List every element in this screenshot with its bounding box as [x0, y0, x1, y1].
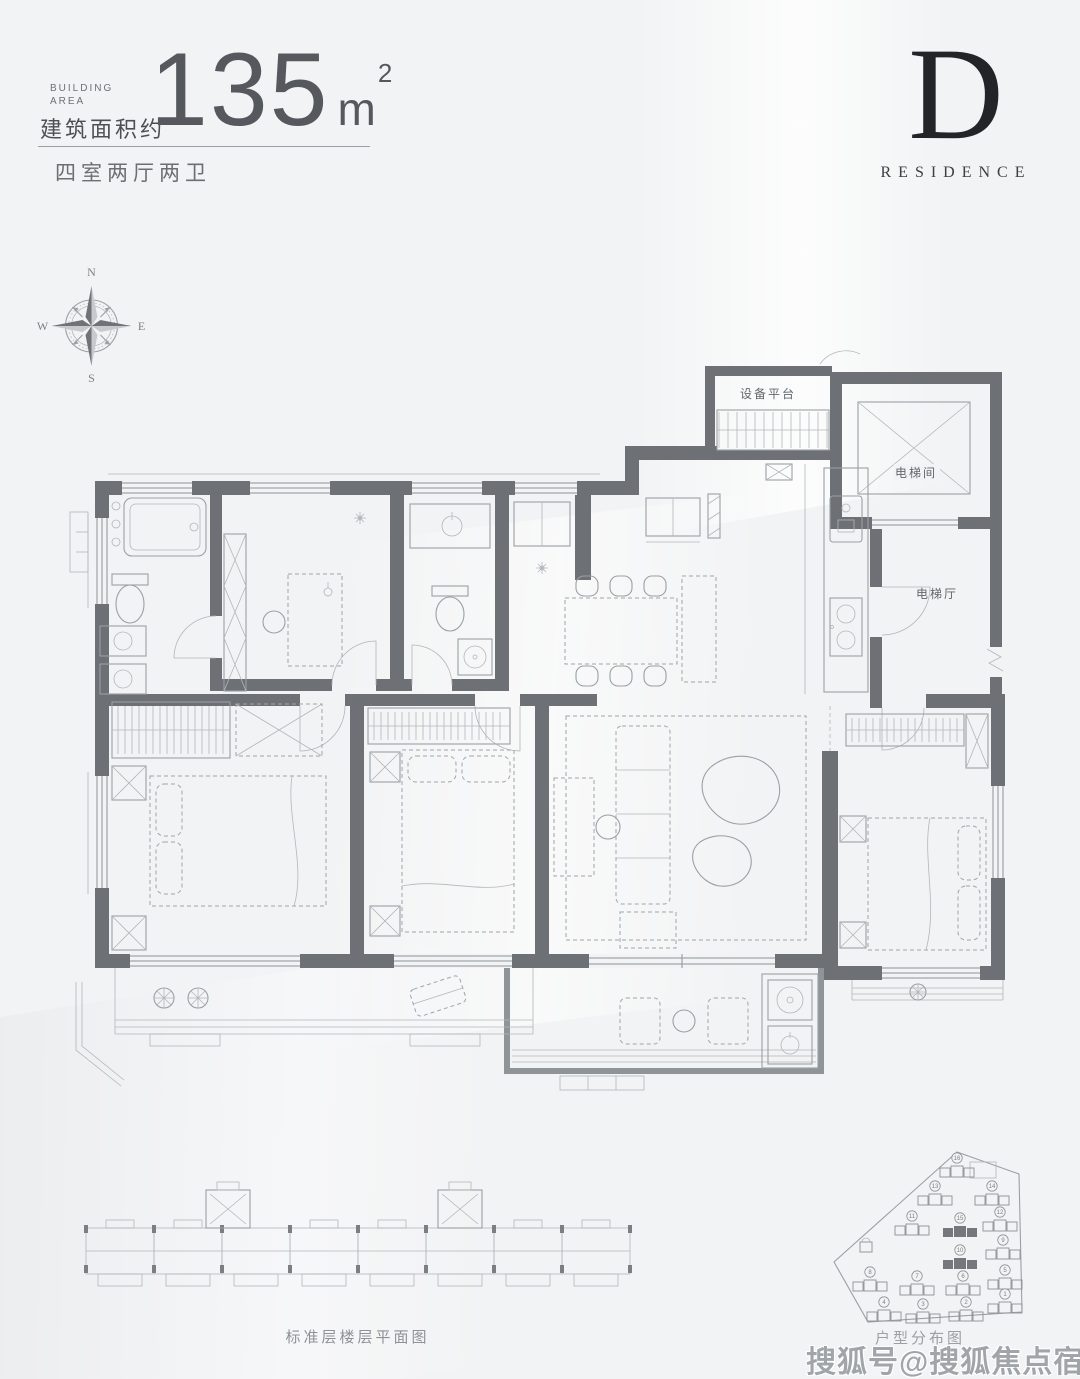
bedroom-2	[368, 708, 514, 936]
residence-brand: D RESIDENCE	[868, 28, 1044, 182]
site-building-6: 6	[946, 1271, 980, 1295]
site-building-10: 10	[943, 1245, 977, 1269]
doors	[174, 587, 930, 751]
site-building-5: 5	[988, 1265, 1022, 1289]
area-number: 135	[150, 44, 330, 138]
master-bed	[150, 776, 326, 906]
dining-area	[565, 576, 716, 686]
floor-plan-page: BUILDING AREA 建筑面积约 135 m 2 四室两厅两卫 D RES…	[0, 0, 1080, 1379]
site-building-12: 12	[983, 1207, 1017, 1231]
equipment-platform: 设备平台	[717, 386, 829, 450]
layout-type-label: 四室两厅两卫	[55, 157, 211, 187]
site-plan-map: 16131411151210987654321	[820, 1136, 1062, 1338]
site-building-14: 14	[975, 1181, 1009, 1205]
equipment-platform-label: 设备平台	[740, 386, 796, 401]
area-figure: 135 m 2	[150, 44, 392, 138]
site-building-1: 1	[988, 1289, 1022, 1313]
site-building-8: 8	[853, 1267, 887, 1291]
site-building-2: 2	[949, 1297, 983, 1321]
site-buildings: 16131411151210987654321	[853, 1153, 1022, 1323]
elevator-shaft: 电梯间	[858, 402, 970, 494]
second-bathroom	[410, 504, 492, 675]
elevator-hall-label: 电梯厅	[916, 587, 958, 601]
balcony	[504, 968, 824, 1090]
hall-wardrobe	[224, 534, 246, 691]
residence-word: RESIDENCE	[868, 164, 1044, 182]
site-boundary	[834, 1152, 1022, 1322]
building-area-en-line2: AREA	[50, 95, 113, 108]
bed-2	[402, 750, 514, 932]
site-building-15: 15	[943, 1213, 977, 1237]
bed-3	[868, 818, 986, 950]
storage-nook	[514, 502, 570, 574]
svg-text:12: 12	[997, 1210, 1004, 1216]
site-building-4: 4	[867, 1297, 901, 1321]
building-area-en-line1: BUILDING	[50, 82, 113, 95]
site-building-11: 11	[895, 1211, 929, 1235]
svg-text:16: 16	[954, 1156, 961, 1162]
floor-plan: 设备平台 电梯间 电梯厅	[60, 346, 1020, 1118]
living-carpet	[566, 716, 806, 940]
compass-east-label: E	[138, 319, 145, 333]
area-exponent: 2	[378, 60, 392, 86]
compass-north-label: N	[87, 265, 96, 279]
svg-text:13: 13	[932, 1184, 939, 1190]
site-building-13: 13	[918, 1181, 952, 1205]
residence-letter: D	[868, 28, 1044, 160]
site-building-7: 7	[900, 1271, 934, 1295]
svg-text:14: 14	[989, 1184, 996, 1190]
standard-floor-caption: 标准层楼层平面图	[205, 1326, 510, 1347]
building-area-label-en: BUILDING AREA	[50, 82, 113, 108]
area-unit: m	[338, 86, 376, 132]
svg-text:11: 11	[909, 1214, 916, 1220]
compass-west-label: W	[37, 319, 49, 333]
desk	[554, 778, 594, 876]
standard-floor-key-plan	[78, 1178, 640, 1316]
study-room	[263, 512, 366, 666]
sideboard	[682, 576, 716, 682]
watermark: 搜狐号@搜狐焦点宿州站	[806, 1337, 1080, 1379]
bedroom-3	[840, 714, 988, 950]
sofa	[616, 726, 670, 904]
header-divider	[38, 146, 370, 147]
living-room	[554, 716, 806, 948]
site-gate-icon	[860, 1238, 872, 1252]
master-bedroom	[112, 702, 326, 950]
elevator-hall: 电梯厅	[916, 587, 958, 601]
svg-text:10: 10	[957, 1248, 964, 1254]
dining-table	[565, 598, 677, 664]
building-area-label-cn: 建筑面积约	[40, 112, 165, 144]
elevator-shaft-label: 电梯间	[895, 466, 937, 480]
site-building-9: 9	[986, 1235, 1020, 1259]
svg-text:15: 15	[957, 1216, 964, 1222]
foyer	[646, 464, 792, 542]
master-bathroom	[100, 498, 206, 694]
